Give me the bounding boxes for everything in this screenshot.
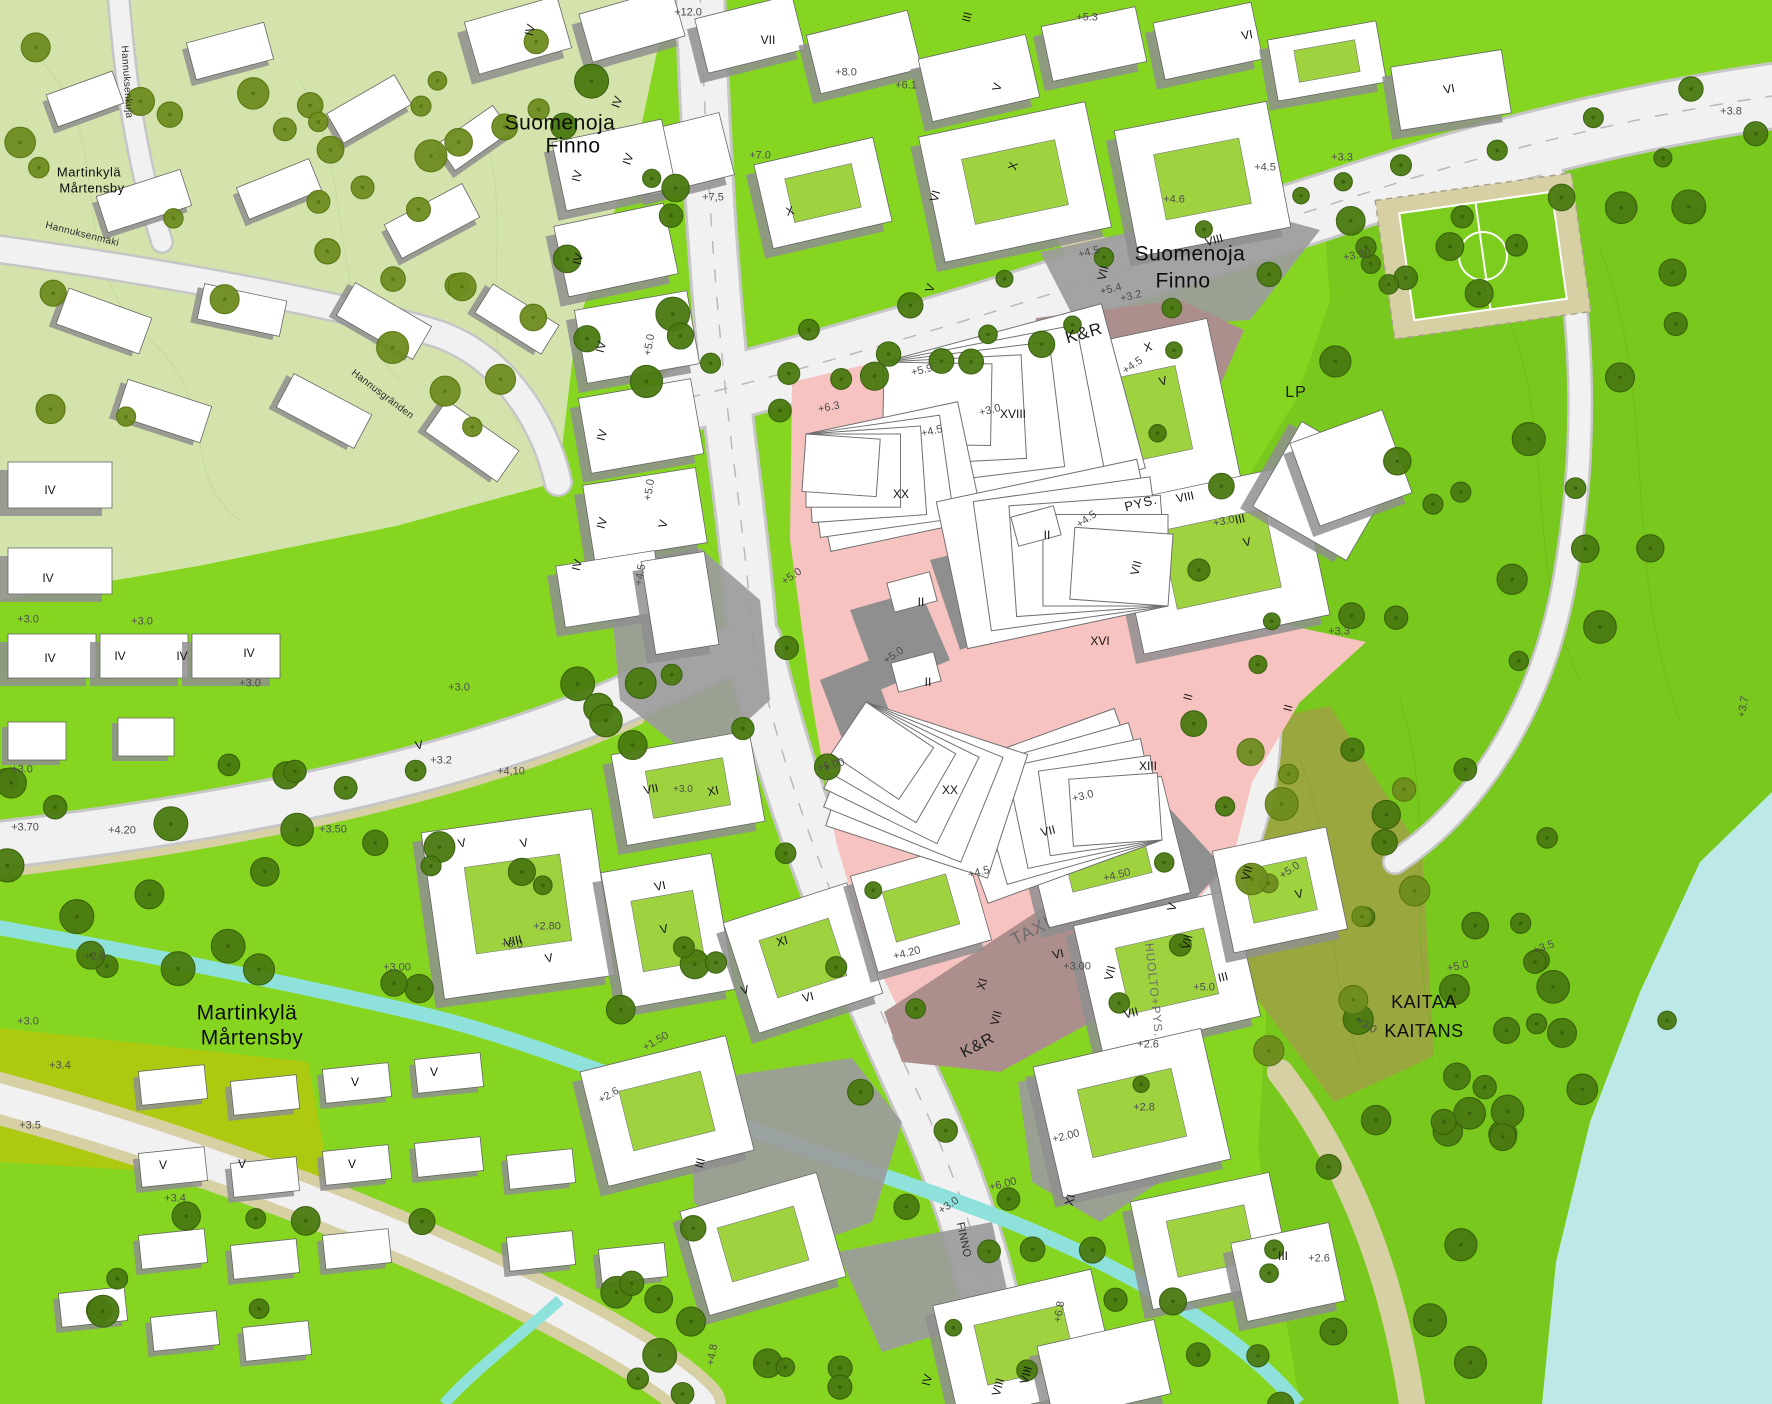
storey-label: VIII	[1175, 489, 1195, 504]
storey-label: XI	[706, 784, 720, 798]
storey-label: IV	[44, 652, 55, 664]
storey-label: III	[1217, 970, 1230, 984]
elevation-label: +4,10	[497, 767, 525, 778]
elevation-label: +3.70	[11, 823, 39, 834]
storey-label: V	[430, 1066, 438, 1078]
storey-label: VI	[1240, 28, 1253, 42]
storey-label: IV	[114, 650, 125, 662]
elevation-label: +3.00	[383, 963, 411, 974]
elevation-label: +4.5	[1254, 163, 1276, 174]
storey-label: XI	[1063, 1193, 1078, 1207]
elevation-label: +3.0	[978, 403, 1002, 419]
elevation-label: +4.8	[706, 1343, 721, 1366]
zone-label: K&R	[958, 1031, 997, 1062]
elevation-label: +5.0	[1446, 959, 1470, 974]
zone-label: LP	[1285, 385, 1307, 401]
storey-label: IV	[523, 23, 538, 37]
road-label: FINNO	[954, 1221, 972, 1258]
elevation-label: +3.0	[673, 785, 693, 795]
elevation-label: +3.0	[239, 679, 261, 690]
elevation-label: +5.0	[643, 333, 658, 356]
road-label: Hannuksenmäki	[44, 221, 120, 249]
storey-label: V	[659, 922, 669, 935]
storey-label: V	[519, 836, 529, 849]
storey-label: XVIII	[1000, 408, 1026, 420]
storey-label: VII	[1128, 559, 1143, 576]
elevation-label: +3.0	[131, 617, 153, 628]
storey-label: V	[1242, 535, 1252, 548]
storey-label: XVI	[1090, 635, 1109, 647]
elevation-label: +5.0	[1193, 983, 1215, 994]
storey-label: IV	[595, 516, 610, 530]
storey-label: VIII	[990, 1377, 1006, 1398]
storey-label: VIII	[503, 933, 523, 948]
elevation-label: +2.80	[533, 922, 561, 933]
elevation-label: +3.30	[1342, 248, 1371, 264]
storey-label: V	[923, 282, 937, 294]
place-label: Suomenoja	[1135, 244, 1246, 265]
storey-label: IV	[243, 647, 254, 659]
elevation-label: +3.0	[937, 1195, 961, 1216]
elevation-label: +3.00	[1063, 962, 1091, 973]
elevation-label: +3.3	[1331, 153, 1353, 164]
elevation-label: +3.0	[17, 615, 39, 626]
place-label: Finno	[545, 136, 600, 157]
storey-label: V	[414, 738, 424, 751]
storey-label: II	[1181, 692, 1194, 702]
map-labels-layer: MartinkyläMårtensbySuomenojaFinnoSuomeno…	[0, 0, 1772, 1404]
elevation-label: +2.00	[1051, 1128, 1081, 1145]
storey-label: V	[1158, 374, 1169, 388]
storey-label: IV	[570, 169, 585, 183]
storey-label: IV	[42, 572, 53, 584]
elevation-label: +1.50	[641, 1030, 671, 1053]
elevation-label: +4.5	[1077, 245, 1101, 261]
storey-label: III	[1234, 512, 1246, 526]
elevation-label: +2.8	[1133, 1103, 1155, 1114]
storey-label: VII	[1095, 264, 1110, 281]
storey-label: VII	[1122, 1005, 1139, 1020]
storey-label: VI	[653, 879, 667, 893]
elevation-label: +3.0	[1212, 514, 1236, 529]
storey-label: III	[1278, 1250, 1288, 1262]
storey-label: XX	[893, 488, 909, 500]
road-label: Hannusgränden	[349, 368, 415, 421]
elevation-label: +4.20	[108, 826, 136, 837]
elevation-label: +3.0	[17, 1017, 39, 1028]
elevation-label: +6.3	[817, 400, 841, 415]
elevation-label: +3.3	[1328, 627, 1350, 638]
elevation-label: +7.0	[749, 151, 771, 162]
elevation-label: +8.0	[835, 68, 857, 79]
storey-label: VII	[1102, 964, 1117, 981]
storey-label: IV	[620, 152, 635, 167]
storey-label: VI	[801, 990, 815, 1005]
storey-label: V	[990, 82, 1004, 93]
place-label: KAITAA	[1391, 993, 1457, 1011]
storey-label: V	[348, 1158, 356, 1170]
storey-label: V	[656, 519, 670, 530]
place-label: KAITANS	[1384, 1022, 1463, 1040]
storey-label: III	[693, 1157, 707, 1170]
storey-label: IV	[594, 340, 609, 354]
storey-label: IV	[44, 484, 55, 496]
storey-label: IV	[570, 558, 585, 572]
storey-label: VII	[643, 782, 660, 797]
elevation-label: +2.6	[84, 952, 106, 963]
elevation-label: +5.0	[882, 645, 906, 666]
elevation-label: +3.4	[49, 1061, 71, 1072]
storey-label: XX	[942, 784, 958, 796]
elevation-label: +6.8	[1053, 1300, 1068, 1323]
storey-label: III	[960, 11, 974, 24]
elevation-label: +3.0	[1354, 1016, 1378, 1036]
storey-label: VII	[988, 1009, 1003, 1026]
storey-label: VI	[928, 189, 943, 203]
elevation-label: +4.5	[967, 865, 991, 881]
storey-label: X	[1143, 340, 1154, 354]
elevation-label: +12.0	[674, 8, 702, 19]
storey-label: V	[351, 1076, 359, 1088]
elevation-label: +3.5	[1532, 939, 1556, 957]
storey-label: IV	[595, 428, 610, 442]
storey-label: IV	[571, 252, 586, 266]
storey-label: VI	[1442, 82, 1455, 96]
place-label: Finno	[1155, 271, 1210, 292]
elevation-label: +5.0	[1278, 860, 1302, 881]
elevation-label: +5.0	[643, 478, 658, 501]
storey-label: V	[457, 836, 467, 849]
elevation-label: +3.5	[19, 1121, 41, 1132]
elevation-label: +6.00	[988, 1176, 1018, 1193]
storey-label: XIII	[1139, 760, 1157, 772]
elevation-label: +3.7	[1737, 695, 1752, 718]
elevation-label: +3.4	[164, 1194, 186, 1205]
place-label: Mårtensby	[59, 182, 124, 195]
elevation-label: +2.6	[1137, 1040, 1159, 1051]
storey-label: V	[238, 1158, 246, 1170]
elevation-label: +2.6	[597, 1086, 621, 1106]
elevation-label: +5.0	[780, 566, 804, 587]
storey-label: VIII	[1018, 1365, 1034, 1386]
elevation-label: +5.9	[910, 363, 934, 379]
storey-label: XI	[975, 977, 990, 991]
place-label: Suomenoja	[505, 113, 616, 134]
storey-label: VII	[761, 34, 776, 46]
storey-label: II	[1044, 529, 1051, 541]
zone-label: K&R	[1063, 320, 1104, 347]
elevation-label: +4.50	[1102, 867, 1132, 884]
storey-label: X	[1006, 161, 1020, 172]
storey-label: XI	[775, 934, 789, 949]
place-label: Martinkylä	[57, 166, 121, 179]
elevation-label: +7,5	[702, 193, 724, 204]
elevation-label: +3.0	[11, 765, 33, 776]
elevation-label: +4.5	[920, 424, 944, 440]
zone-label: HUOLTO+PYS.	[1143, 943, 1165, 1038]
elevation-label: +3.50	[319, 825, 347, 836]
zone-label: TAXI	[1008, 913, 1054, 948]
elevation-label: +6.1	[895, 81, 917, 92]
elevation-label: +3.2	[430, 756, 452, 767]
elevation-label: +5.3	[1076, 13, 1098, 24]
elevation-label: +3.0	[448, 683, 470, 694]
storey-label: IV	[176, 650, 187, 662]
city-plan-map: MartinkyläMårtensbySuomenojaFinnoSuomeno…	[0, 0, 1772, 1404]
storey-label: VI	[1051, 947, 1065, 961]
elevation-label: +4.5	[1075, 509, 1099, 530]
storey-label: II	[918, 596, 925, 608]
storey-label: V	[740, 983, 751, 997]
storey-label: II	[1281, 703, 1294, 713]
storey-label: IV	[920, 1373, 935, 1387]
elevation-label: +3.2	[1119, 289, 1143, 305]
storey-label: V	[159, 1159, 167, 1171]
place-label: Mårtensby	[201, 1028, 304, 1049]
storey-label: VII	[1039, 823, 1056, 838]
elevation-label: +5.00	[816, 757, 846, 774]
storey-label: V	[544, 951, 554, 964]
elevation-label: +4.5	[1121, 355, 1145, 376]
zone-label: PYS.	[1123, 493, 1159, 514]
storey-label: VII	[1239, 864, 1254, 881]
storey-label: V	[1165, 902, 1179, 913]
elevation-label: +4.5	[634, 563, 649, 586]
storey-label: VII	[1179, 933, 1194, 950]
storey-label: II	[925, 676, 932, 688]
elevation-label: +3.8	[1720, 107, 1742, 118]
elevation-label: +4.6	[1163, 195, 1185, 206]
storey-label: V	[1294, 887, 1304, 900]
storey-label: IV	[609, 95, 624, 110]
elevation-label: +4.20	[892, 945, 922, 962]
place-label: Martinkylä	[197, 1003, 298, 1024]
storey-label: X	[785, 204, 796, 218]
elevation-label: +2.6	[1308, 1254, 1330, 1265]
road-label: Hannuksenkuja	[118, 45, 133, 118]
elevation-label: +3.0	[1071, 789, 1095, 805]
